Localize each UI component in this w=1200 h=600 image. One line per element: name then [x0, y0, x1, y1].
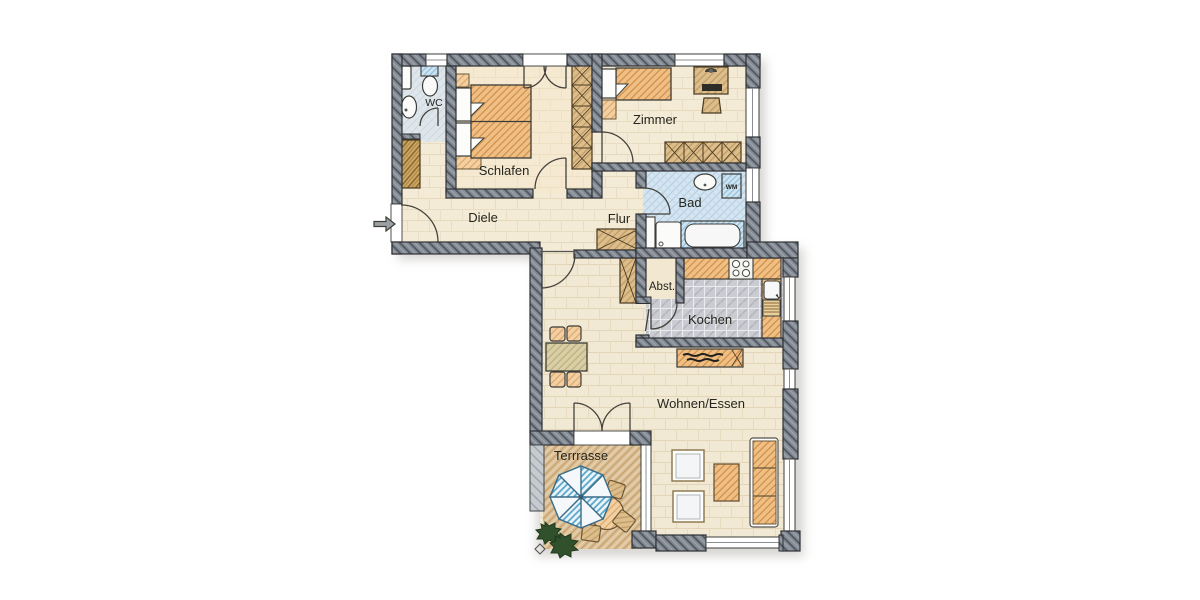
- svg-text:Wohnen/Essen: Wohnen/Essen: [657, 396, 745, 411]
- svg-text:WM: WM: [726, 184, 738, 191]
- svg-text:Kochen: Kochen: [688, 312, 732, 327]
- svg-text:Flur: Flur: [608, 211, 631, 226]
- svg-text:Schlafen: Schlafen: [479, 163, 530, 178]
- svg-text:Zimmer: Zimmer: [633, 112, 678, 127]
- svg-text:Abst.: Abst.: [649, 281, 675, 293]
- svg-text:WC: WC: [425, 97, 443, 109]
- svg-text:Diele: Diele: [468, 210, 498, 225]
- svg-text:Bad: Bad: [678, 195, 701, 210]
- svg-text:Terrrasse: Terrrasse: [554, 448, 608, 463]
